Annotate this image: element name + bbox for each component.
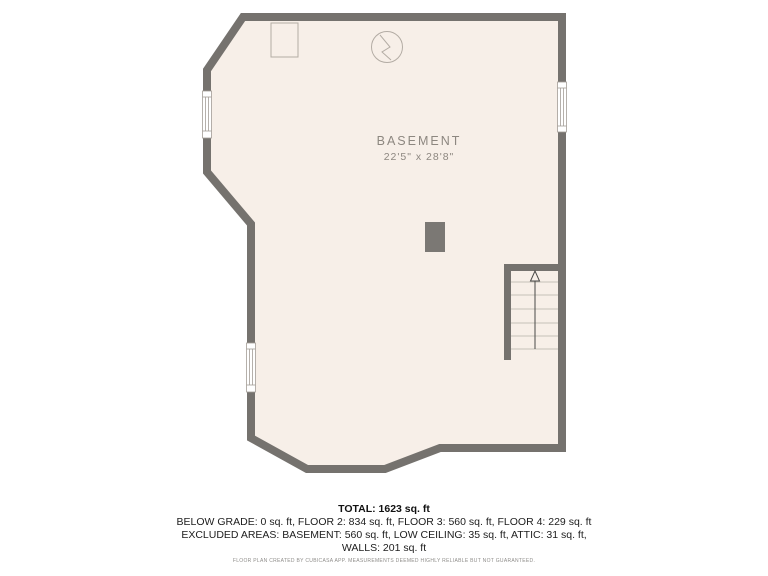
floor-areas-line: BELOW GRADE: 0 sq. ft, FLOOR 2: 834 sq. … (0, 516, 768, 529)
floor-plan-drawing (0, 0, 768, 496)
stairwell-left-wall (504, 264, 511, 360)
basement-outline-walls (207, 17, 562, 469)
walls-area-line: WALLS: 201 sq. ft (0, 542, 768, 555)
total-area-line: TOTAL: 1623 sq. ft (0, 503, 768, 516)
window-upper-left (203, 91, 212, 138)
stairwell-top-wall (504, 264, 558, 271)
window-right (558, 82, 567, 132)
area-summary: TOTAL: 1623 sq. ft BELOW GRADE: 0 sq. ft… (0, 503, 768, 555)
room-dimensions: 22'5" x 28'8" (377, 151, 462, 163)
disclaimer-text: FLOOR PLAN CREATED BY CUBICASA APP. MEAS… (0, 558, 768, 564)
window-lower-left (247, 343, 256, 392)
excluded-areas-line: EXCLUDED AREAS: BASEMENT: 560 sq. ft, LO… (0, 529, 768, 542)
room-label: BASEMENT 22'5" x 28'8" (377, 134, 462, 163)
support-post (425, 222, 445, 252)
room-name: BASEMENT (377, 134, 462, 148)
